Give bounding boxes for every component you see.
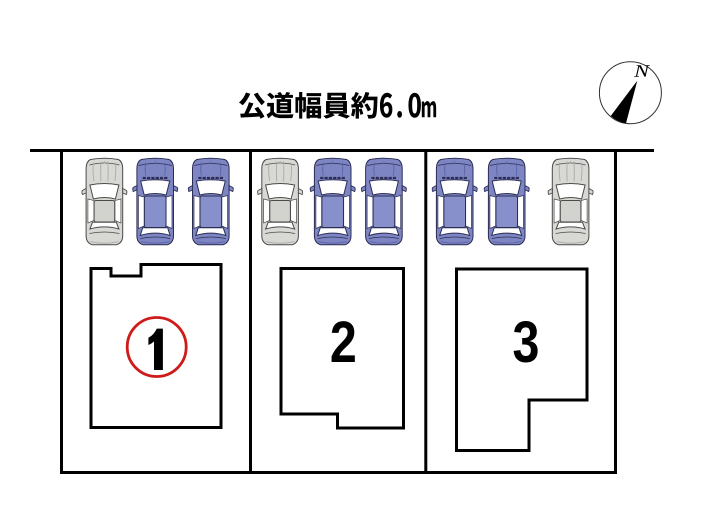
svg-text:3: 3 xyxy=(512,310,539,376)
svg-text:2: 2 xyxy=(330,310,357,376)
